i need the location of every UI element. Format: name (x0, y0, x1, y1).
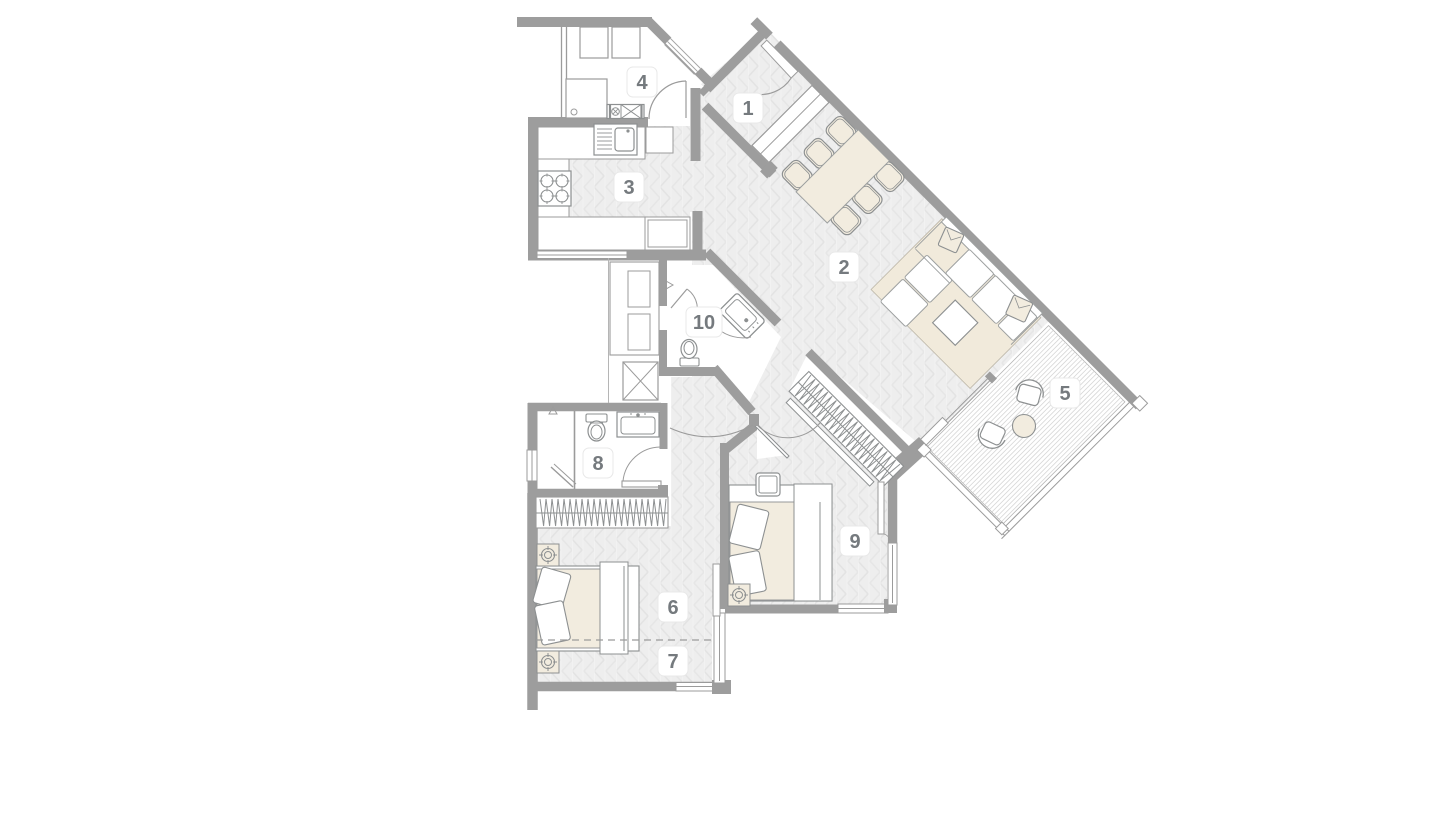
svg-text:7: 7 (667, 651, 678, 673)
svg-text:8: 8 (592, 453, 603, 475)
svg-text:2: 2 (838, 257, 849, 279)
svg-text:3: 3 (623, 177, 634, 199)
svg-text:10: 10 (693, 312, 715, 334)
svg-text:6: 6 (667, 597, 678, 619)
svg-text:4: 4 (636, 72, 648, 94)
svg-text:9: 9 (849, 531, 860, 553)
svg-text:1: 1 (742, 98, 753, 120)
svg-text:5: 5 (1059, 383, 1070, 405)
